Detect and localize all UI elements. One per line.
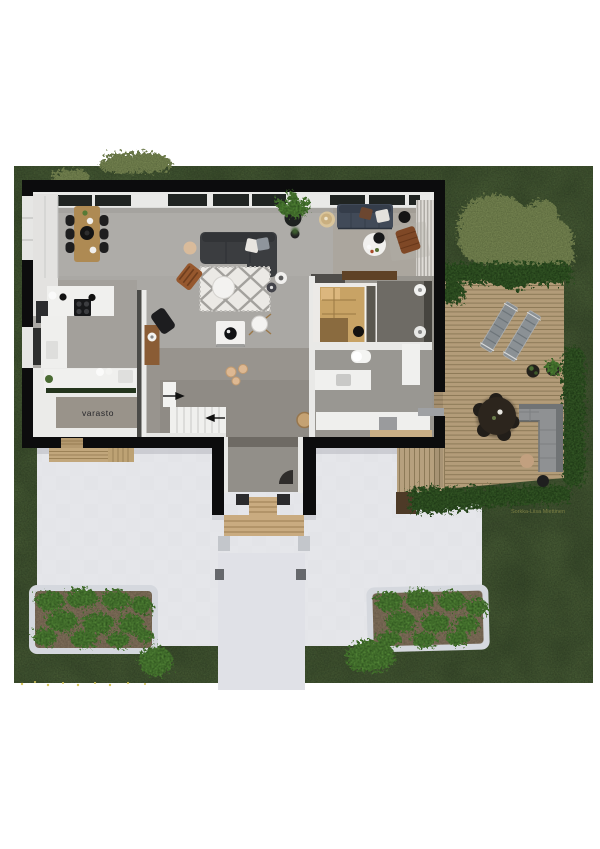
svg-text:Sorkka-Liisa Miettinen: Sorkka-Liisa Miettinen: [511, 509, 565, 515]
svg-text:varasto: varasto: [82, 408, 114, 418]
